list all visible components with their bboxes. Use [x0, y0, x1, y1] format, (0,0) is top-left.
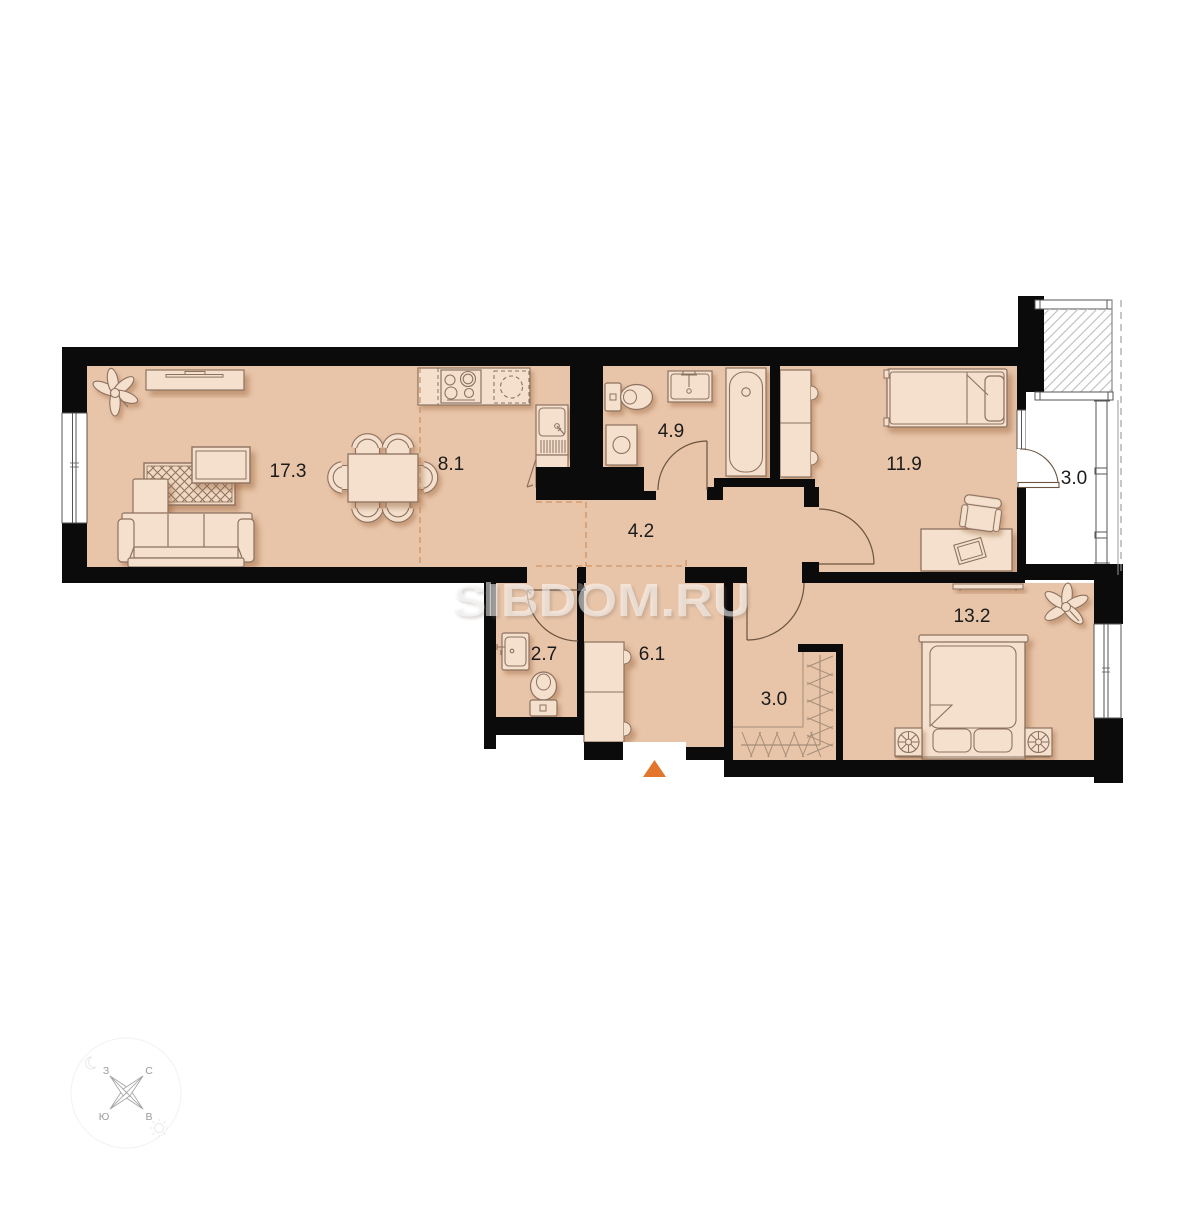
svg-text:З: З	[103, 1065, 109, 1077]
svg-text:4.2: 4.2	[628, 521, 654, 542]
svg-text:4.9: 4.9	[658, 421, 684, 442]
svg-text:3.0: 3.0	[761, 689, 787, 710]
svg-text:2.7: 2.7	[531, 644, 557, 665]
svg-text:8.1: 8.1	[438, 454, 464, 475]
svg-text:3.0: 3.0	[1061, 468, 1087, 489]
svg-text:Ю: Ю	[99, 1111, 110, 1123]
svg-text:С: С	[145, 1065, 153, 1077]
svg-text:В: В	[145, 1111, 152, 1123]
svg-text:13.2: 13.2	[954, 606, 991, 627]
svg-text:17.3: 17.3	[270, 461, 307, 482]
svg-text:SIBDOM.RU: SIBDOM.RU	[452, 574, 751, 626]
svg-text:11.9: 11.9	[886, 454, 922, 475]
svg-text:6.1: 6.1	[639, 644, 665, 665]
